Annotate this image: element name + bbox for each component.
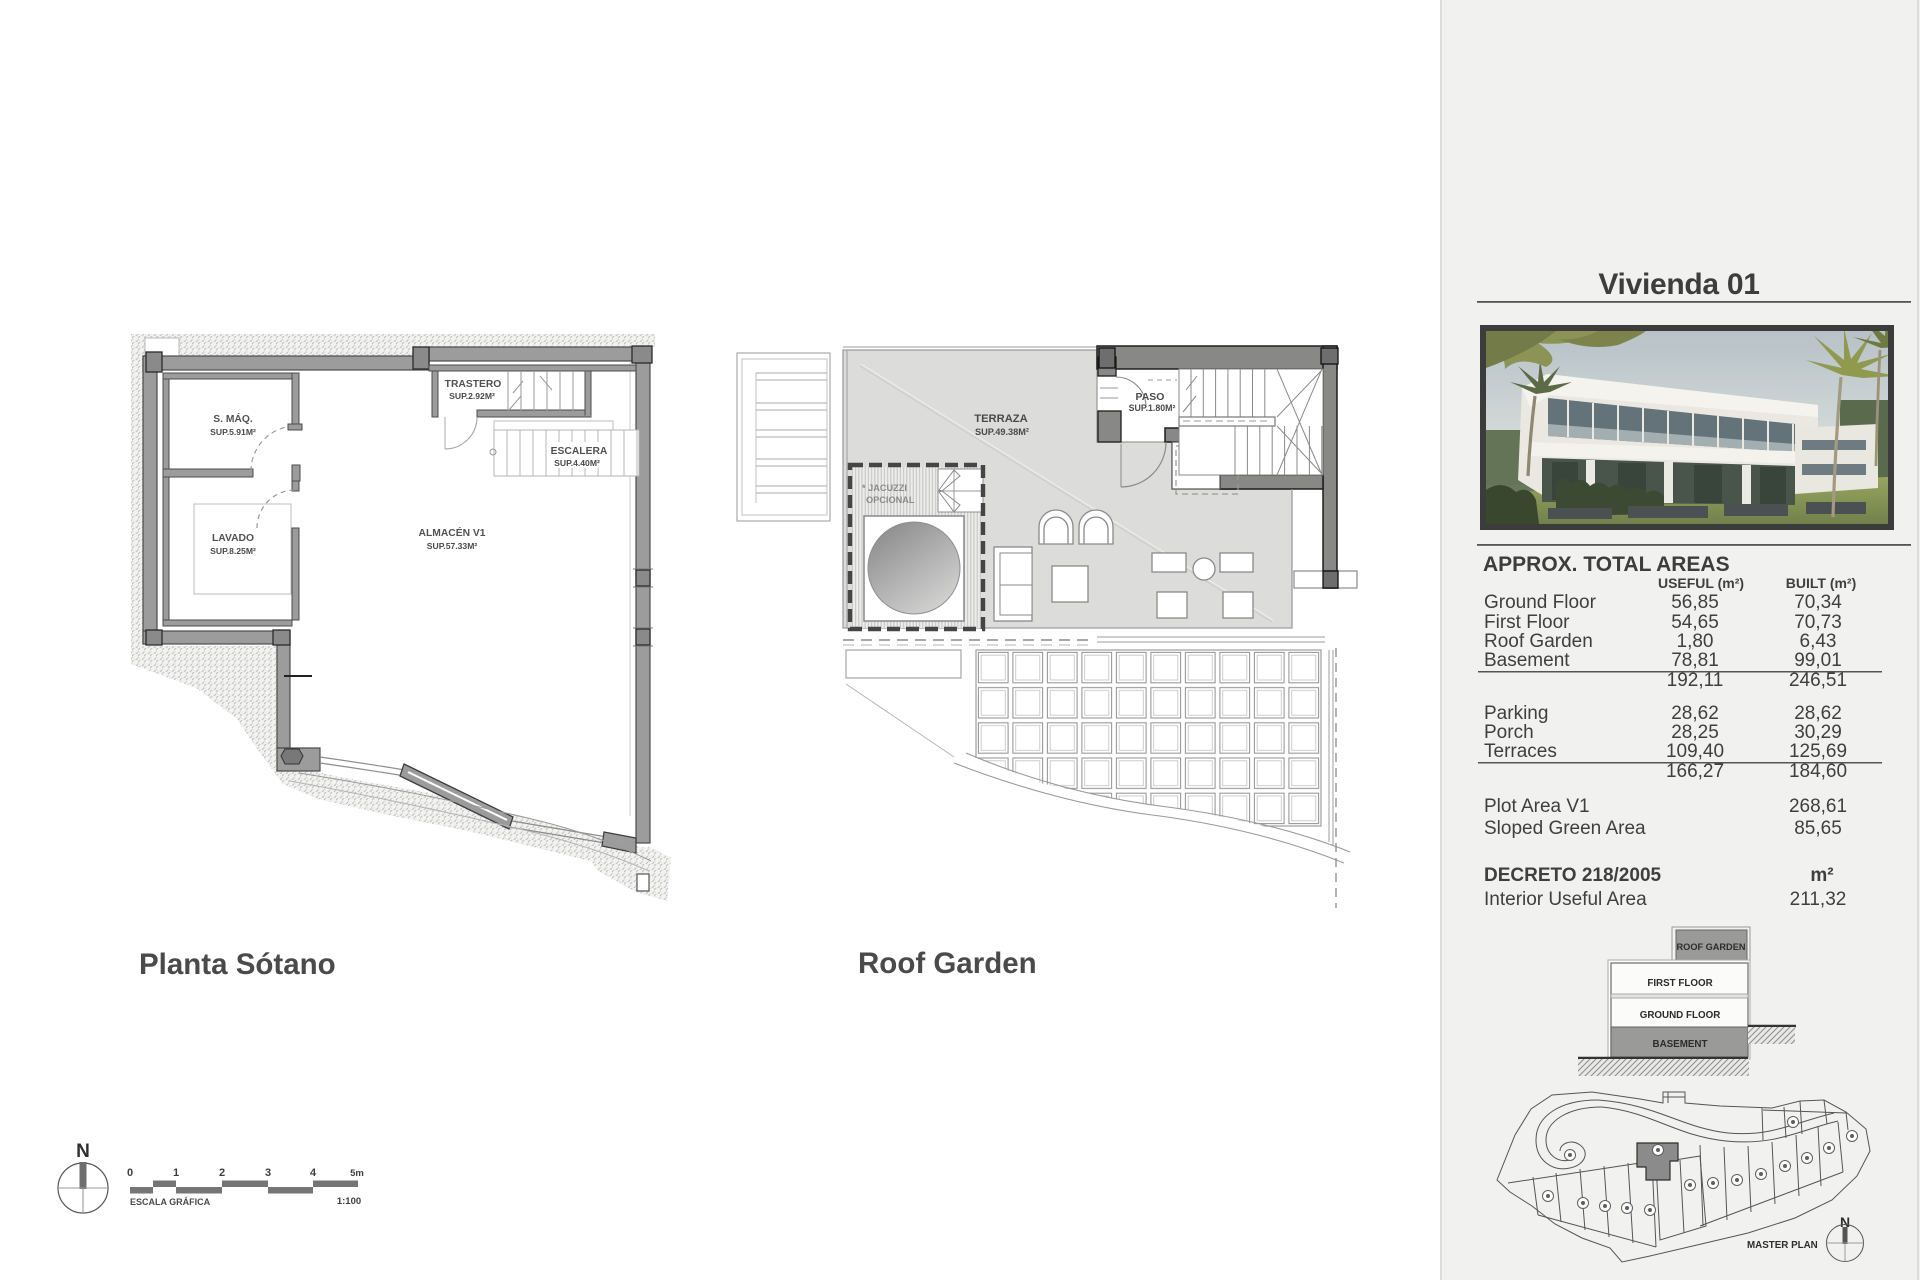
svg-text:Sloped Green Area: Sloped Green Area [1484, 818, 1646, 839]
svg-text:ROOF GARDEN: ROOF GARDEN [1677, 942, 1746, 952]
svg-text:Ground Floor: Ground Floor [1484, 592, 1597, 613]
svg-text:70,34: 70,34 [1794, 592, 1842, 613]
svg-text:184,60: 184,60 [1789, 761, 1847, 782]
svg-text:GROUND FLOOR: GROUND FLOOR [1640, 1010, 1721, 1021]
svg-text:SUP.49.38M²: SUP.49.38M² [975, 427, 1029, 437]
svg-text:Roof Garden: Roof Garden [858, 947, 1037, 980]
svg-text:OPCIONAL: OPCIONAL [866, 495, 915, 505]
svg-text:SUP.4.40M²: SUP.4.40M² [554, 458, 600, 468]
svg-text:Plot Area V1: Plot Area V1 [1484, 796, 1590, 817]
svg-text:ALMACÉN V1: ALMACÉN V1 [419, 526, 486, 539]
svg-text:28,62: 28,62 [1794, 703, 1842, 724]
svg-text:109,40: 109,40 [1666, 741, 1724, 762]
svg-text:28,62: 28,62 [1671, 703, 1719, 724]
svg-text:85,65: 85,65 [1794, 818, 1842, 839]
svg-text:125,69: 125,69 [1789, 741, 1847, 762]
svg-text:166,27: 166,27 [1666, 761, 1724, 782]
svg-text:99,01: 99,01 [1794, 650, 1842, 671]
svg-text:ESCALA GRÁFICA: ESCALA GRÁFICA [130, 1197, 211, 1207]
svg-text:78,81: 78,81 [1671, 650, 1719, 671]
svg-text:TERRAZA: TERRAZA [974, 413, 1027, 425]
svg-text:m²: m² [1810, 865, 1833, 886]
svg-text:3: 3 [265, 1167, 271, 1179]
svg-text:BASEMENT: BASEMENT [1653, 1039, 1708, 1050]
svg-text:ESCALERA: ESCALERA [551, 446, 608, 457]
svg-text:1:100: 1:100 [337, 1196, 361, 1207]
svg-text:Porch: Porch [1484, 722, 1534, 743]
svg-text:FIRST FLOOR: FIRST FLOOR [1647, 978, 1712, 989]
svg-text:SUP.5.91M²: SUP.5.91M² [210, 427, 256, 437]
svg-text:SUP.2.92M²: SUP.2.92M² [449, 391, 495, 401]
svg-text:DECRETO 218/2005: DECRETO 218/2005 [1484, 865, 1662, 886]
svg-text:SUP.8.25M²: SUP.8.25M² [210, 546, 256, 556]
svg-text:Roof Garden: Roof Garden [1484, 631, 1593, 652]
svg-text:28,25: 28,25 [1671, 722, 1719, 743]
svg-text:Vivienda 01: Vivienda 01 [1598, 268, 1759, 301]
svg-text:Terraces: Terraces [1484, 741, 1557, 762]
svg-text:* JACUZZI: * JACUZZI [862, 483, 907, 493]
svg-text:Basement: Basement [1484, 650, 1570, 671]
svg-text:70,73: 70,73 [1794, 612, 1842, 633]
svg-text:APPROX. TOTAL AREAS: APPROX. TOTAL AREAS [1483, 553, 1730, 576]
svg-text:BUILT (m²): BUILT (m²) [1786, 575, 1857, 591]
svg-text:Parking: Parking [1484, 703, 1548, 724]
svg-text:268,61: 268,61 [1789, 796, 1847, 817]
svg-text:54,65: 54,65 [1671, 612, 1719, 633]
svg-text:211,32: 211,32 [1790, 889, 1847, 910]
svg-text:30,29: 30,29 [1794, 722, 1842, 743]
svg-text:6,43: 6,43 [1800, 631, 1837, 652]
svg-text:1,80: 1,80 [1677, 631, 1714, 652]
svg-text:SUP.1.80M²: SUP.1.80M² [1129, 403, 1176, 413]
svg-text:N: N [76, 1141, 90, 1162]
svg-text:Interior Useful Area: Interior Useful Area [1484, 889, 1647, 910]
svg-text:4: 4 [310, 1167, 317, 1179]
svg-text:SUP.57.33M²: SUP.57.33M² [427, 541, 478, 551]
svg-text:2: 2 [219, 1167, 225, 1179]
svg-text:246,51: 246,51 [1789, 670, 1847, 691]
svg-text:MASTER PLAN: MASTER PLAN [1747, 1240, 1818, 1251]
svg-text:192,11: 192,11 [1667, 670, 1724, 691]
svg-text:USEFUL (m²): USEFUL (m²) [1658, 575, 1744, 591]
svg-text:LAVADO: LAVADO [212, 533, 254, 544]
svg-text:PASO: PASO [1136, 391, 1165, 403]
svg-text:S. MÁQ.: S. MÁQ. [213, 412, 253, 425]
svg-text:First Floor: First Floor [1484, 612, 1570, 633]
svg-text:56,85: 56,85 [1671, 592, 1719, 613]
svg-text:0: 0 [127, 1167, 133, 1179]
svg-text:Planta Sótano: Planta Sótano [139, 948, 336, 981]
svg-text:5m: 5m [350, 1168, 364, 1179]
svg-text:TRASTERO: TRASTERO [445, 379, 502, 390]
svg-text:1: 1 [173, 1167, 179, 1179]
